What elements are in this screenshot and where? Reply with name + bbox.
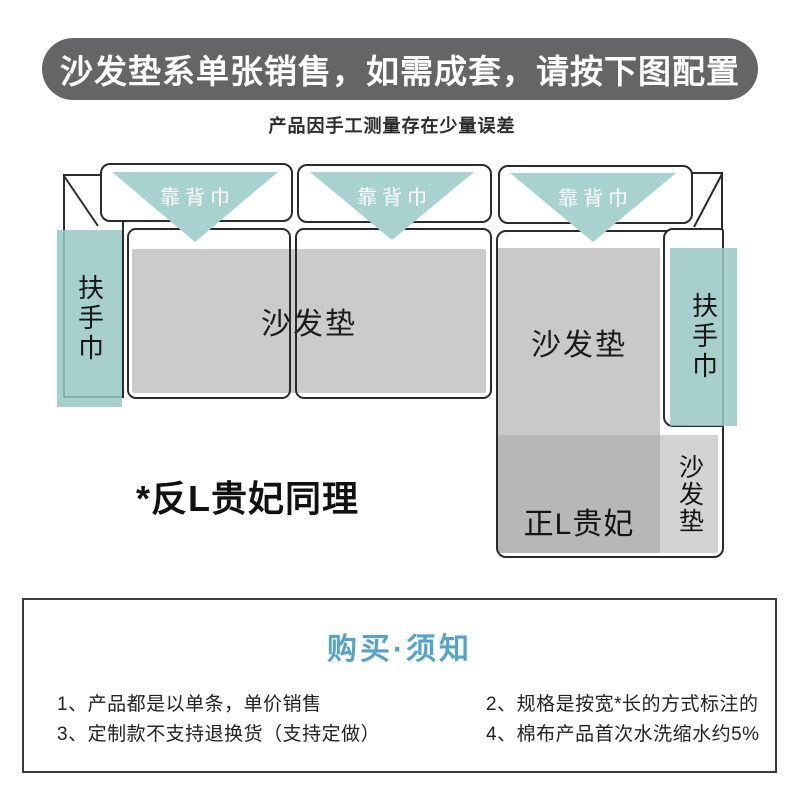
notice-item-2: 2、规格是按宽*长的方式标注的 bbox=[486, 690, 775, 720]
notice-column-right: 2、规格是按宽*长的方式标注的 4、棉布产品首次水洗缩水约5% bbox=[486, 690, 775, 750]
notice-item-3: 3、定制款不支持退换货（支持定做） bbox=[57, 720, 486, 750]
backrest-towel-label: 靠背巾 bbox=[155, 181, 235, 210]
notice-item-4: 4、棉布产品首次水洗缩水约5% bbox=[486, 720, 775, 750]
purchase-notice-title: 购买·须知 bbox=[24, 624, 775, 668]
armrest-towel-label: 扶手巾 bbox=[77, 274, 103, 364]
seat-section-1-outline bbox=[127, 228, 291, 399]
seat-section-2-outline bbox=[295, 228, 492, 399]
mirror-layout-note: *反L贵妃同理 bbox=[136, 470, 359, 522]
purchase-notice-items: 1、产品都是以单条，单价销售 3、定制款不支持退换货（支持定做） 2、规格是按宽… bbox=[24, 690, 775, 750]
backrest-towel-label: 靠背巾 bbox=[553, 182, 633, 211]
purchase-notice-box: 购买·须知 1、产品都是以单条，单价销售 3、定制款不支持退换货（支持定做） 2… bbox=[22, 598, 777, 773]
notice-item-1: 1、产品都是以单条，单价销售 bbox=[57, 690, 486, 720]
product-info-page: 沙发垫系单张销售，如需成套，请按下图配置 产品因手工测量存在少量误差 靠背巾 靠… bbox=[0, 0, 800, 800]
sofa-configuration-diagram: 靠背巾 靠背巾 靠背巾 沙发垫 沙发垫 正L贵妃 沙发垫 扶手巾 扶手巾 *反 bbox=[0, 0, 800, 590]
armrest-towel-label: 扶手巾 bbox=[691, 292, 717, 382]
armrest-towel-right: 扶手巾 bbox=[670, 248, 737, 426]
backrest-towel-label: 靠背巾 bbox=[352, 181, 432, 210]
notice-column-left: 1、产品都是以单条，单价销售 3、定制款不支持退换货（支持定做） bbox=[57, 690, 486, 750]
armrest-towel-left: 扶手巾 bbox=[57, 230, 122, 407]
